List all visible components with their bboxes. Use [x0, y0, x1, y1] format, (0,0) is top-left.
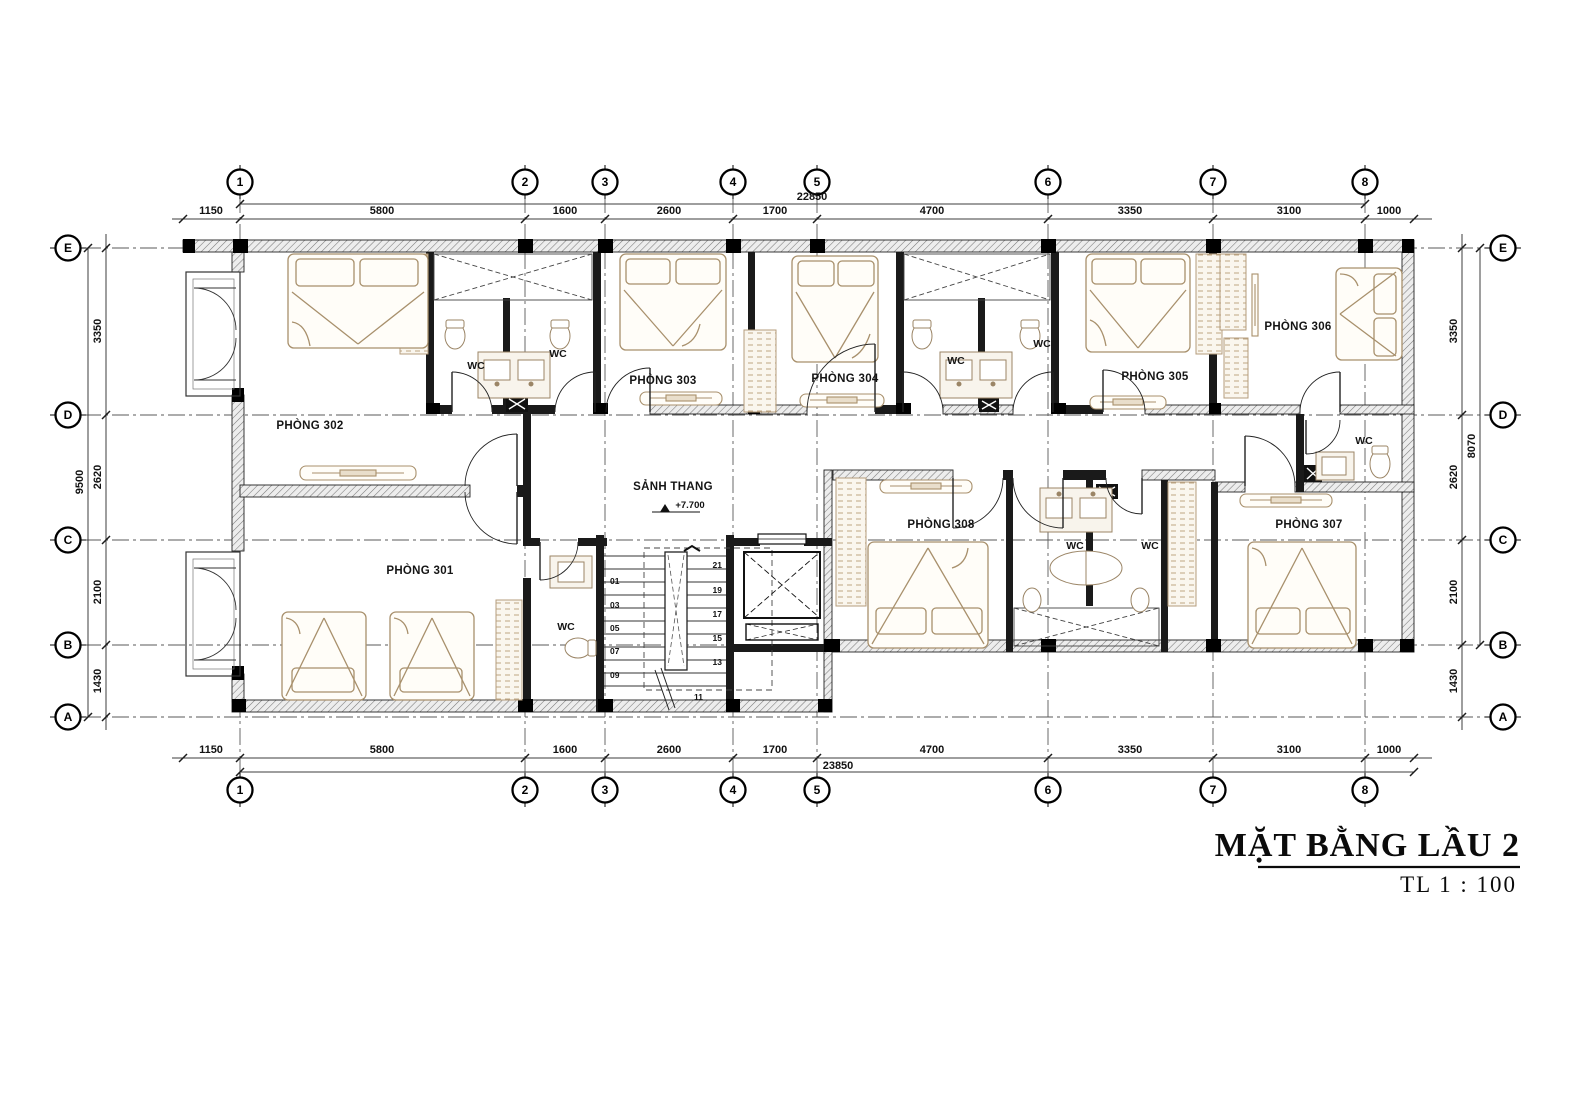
- level-marker: +7.700: [652, 500, 705, 512]
- wc-label: WC: [1066, 540, 1084, 552]
- stair-tread-number: 15: [713, 633, 723, 643]
- grid-row-label: D: [1499, 408, 1508, 422]
- grid-col-label: 3: [602, 783, 609, 797]
- dim-left: 1430: [92, 669, 104, 693]
- wc-label: WC: [947, 355, 965, 367]
- grid-col-label: 7: [1210, 783, 1217, 797]
- stair-tread-number: 09: [610, 670, 620, 680]
- grid-row-label: D: [64, 408, 73, 422]
- grid-col-label: 1: [237, 783, 244, 797]
- grid-row-label: B: [64, 638, 73, 652]
- room-label-306: PHÒNG 306: [1264, 320, 1331, 333]
- grid-row-label: E: [64, 241, 72, 255]
- grid-col-label: 8: [1362, 175, 1369, 189]
- bed-301a: [282, 612, 366, 700]
- room-label-302: PHÒNG 302: [276, 419, 343, 432]
- wc-label: WC: [549, 348, 567, 360]
- toilet: [1131, 588, 1149, 612]
- drawing-title: MẶT BẰNG LẦU 2: [1215, 825, 1520, 864]
- dim-top: 3350: [1118, 205, 1142, 217]
- dim-bottom: 4700: [920, 744, 944, 756]
- wc-label: WC: [1033, 338, 1051, 350]
- grid-col-label: 6: [1045, 175, 1052, 189]
- bed-305: [1086, 254, 1190, 352]
- grid-col-label: 5: [814, 783, 821, 797]
- bed-302: [288, 254, 428, 348]
- grid-row-label: C: [64, 533, 73, 547]
- dim-top: 2600: [657, 205, 681, 217]
- room-label-307: PHÒNG 307: [1275, 518, 1342, 531]
- grid-row-label: E: [1499, 241, 1507, 255]
- stair-tread-number: 19: [713, 585, 723, 595]
- bed-303: [620, 254, 726, 350]
- dim-top: 1600: [553, 205, 577, 217]
- dim-right: 2620: [1448, 465, 1460, 489]
- stair-direction-arrow: [684, 546, 700, 551]
- room-label-308: PHÒNG 308: [907, 518, 975, 531]
- grid-col-label: 7: [1210, 175, 1217, 189]
- room-label-301: PHÒNG 301: [386, 564, 454, 577]
- dim-top: 5800: [370, 205, 394, 217]
- toilet: [565, 638, 591, 658]
- dim-right: 1430: [1448, 669, 1460, 693]
- grid-col-label: 2: [522, 783, 529, 797]
- dim-top: 1150: [199, 205, 223, 217]
- floor-plan-sheet: 1 2 3 4 5 6 7 8 1 2 3 4 5 6 7 8 E D C B …: [0, 0, 1595, 1116]
- wc-label: WC: [1355, 435, 1373, 447]
- grid-row-label: A: [64, 710, 73, 724]
- level-value: +7.700: [675, 500, 704, 511]
- dim-right: 2100: [1448, 580, 1460, 604]
- wc-label: WC: [557, 621, 575, 633]
- dim-bottom: 1000: [1377, 744, 1401, 756]
- dim-bottom: 2600: [657, 744, 681, 756]
- wc-label: WC: [1141, 540, 1159, 552]
- dim-bottom: 3100: [1277, 744, 1301, 756]
- dim-left-total: 9500: [74, 470, 86, 494]
- room-label-303: PHÒNG 303: [629, 374, 696, 387]
- bed-306: [1336, 268, 1402, 360]
- grid-row-label: B: [1499, 638, 1508, 652]
- stair-tread-number: 21: [713, 560, 723, 570]
- dim-top: 3100: [1277, 205, 1301, 217]
- grid-col-label: 5: [814, 175, 821, 189]
- stair-tread-number: 17: [713, 609, 723, 619]
- dim-bottom: 1600: [553, 744, 577, 756]
- dim-top: 1000: [1377, 205, 1401, 217]
- dim-right-total: 8070: [1466, 434, 1478, 458]
- grid-row-label: A: [1499, 710, 1508, 724]
- grid-col-label: 2: [522, 175, 529, 189]
- dim-left: 3350: [92, 319, 104, 343]
- dim-bottom: 1700: [763, 744, 787, 756]
- dim-top: 4700: [920, 205, 944, 217]
- dim-left: 2100: [92, 580, 104, 604]
- wc-label: WC: [467, 360, 485, 372]
- grid-row-label: C: [1499, 533, 1508, 547]
- grid-col-label: 1: [237, 175, 244, 189]
- grid-col-label: 4: [730, 175, 737, 189]
- stair-tread-number: 05: [610, 623, 620, 633]
- stair-tread-number: 03: [610, 600, 620, 610]
- dim-top-total: 22850: [797, 191, 828, 203]
- bed-307: [1248, 542, 1356, 648]
- toilet: [1023, 588, 1041, 612]
- room-label-304: PHÒNG 304: [811, 372, 879, 385]
- dim-left: 2620: [92, 465, 104, 489]
- bed-308: [868, 542, 988, 648]
- bed-301b: [390, 612, 474, 700]
- stair-tread-number: 13: [713, 657, 723, 667]
- grid-col-label: 3: [602, 175, 609, 189]
- drawing-scale: TL 1 : 100: [1400, 872, 1517, 897]
- room-label-lobby: SẢNH THANG: [633, 480, 713, 493]
- dim-right: 3350: [1448, 319, 1460, 343]
- stair-tread-number: 07: [610, 646, 620, 656]
- dim-bottom: 5800: [370, 744, 394, 756]
- title-block: MẶT BẰNG LẦU 2 TL 1 : 100: [1215, 825, 1520, 897]
- grid-col-label: 8: [1362, 783, 1369, 797]
- dim-bottom-total: 23850: [823, 760, 854, 772]
- bed-304: [792, 256, 878, 362]
- floor-plan-drawing: 1 2 3 4 5 6 7 8 1 2 3 4 5 6 7 8 E D C B …: [0, 0, 1595, 1116]
- elevator: [744, 534, 820, 640]
- dim-bottom: 3350: [1118, 744, 1142, 756]
- dim-bottom: 1150: [199, 744, 223, 756]
- grid-col-label: 6: [1045, 783, 1052, 797]
- room-label-305: PHÒNG 305: [1121, 370, 1189, 383]
- staircase: 01 03 05 07 09 21 19 17 15 13 11: [604, 546, 772, 710]
- grid-col-label: 4: [730, 783, 737, 797]
- dim-top: 1700: [763, 205, 787, 217]
- stair-tread-number: 11: [694, 692, 703, 702]
- stair-tread-number: 01: [610, 576, 620, 586]
